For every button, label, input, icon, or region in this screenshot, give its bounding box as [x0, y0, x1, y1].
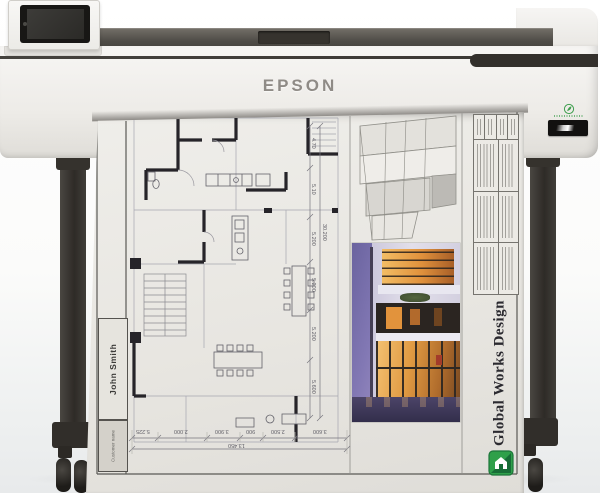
- stand-left-leg: [60, 158, 86, 446]
- green-house-logo-icon: [488, 450, 514, 476]
- photo-floor-slab: [376, 333, 460, 341]
- printed-sheet: 4.70 5.10 5.200 5.200 5.200 5.600 30.200…: [86, 112, 524, 493]
- customer-field-label-box: Customer name: [98, 420, 128, 472]
- model-nameplate-badge: [548, 120, 588, 136]
- revision-cell: [474, 115, 485, 139]
- revision-cell: [499, 243, 518, 294]
- door-swings: [178, 140, 224, 242]
- dimension-label: 5.200: [310, 278, 316, 292]
- stand-right-leg: [530, 155, 556, 445]
- house-night-photo: [352, 243, 460, 422]
- home-button-icon: [23, 22, 27, 26]
- dimension-label: 5.200: [310, 327, 316, 341]
- revision-table-header: [474, 115, 518, 140]
- dimension-label: 900: [246, 428, 255, 434]
- dimension-label: 3.900: [215, 428, 229, 434]
- revision-cell: [474, 192, 498, 244]
- dimension-chain-lines: [129, 123, 350, 454]
- dimension-label: 4.70: [310, 138, 316, 149]
- revision-column: [499, 140, 518, 294]
- dimension-label: 5.10: [310, 184, 316, 195]
- dimension-label: 2.500: [271, 428, 285, 434]
- photo-ground: [352, 397, 460, 422]
- revision-table-body: [474, 140, 518, 294]
- photo-lit-window: [386, 307, 402, 329]
- revision-cell: [499, 140, 518, 192]
- dimension-label: 2.000: [174, 428, 188, 434]
- photo-lit-window: [410, 309, 420, 325]
- photo-building-edge: [370, 247, 373, 403]
- left-caster-mount: [58, 446, 72, 458]
- right-caster-mount: [522, 444, 536, 456]
- eco-leaf-icon: [562, 103, 576, 115]
- revision-cell: [474, 140, 498, 192]
- revision-cell: [499, 192, 518, 244]
- dimension-total-label: 13.450: [228, 442, 245, 448]
- stand-left-foot: [52, 422, 92, 448]
- revision-column: [474, 140, 499, 294]
- plan-thin-lines: [134, 118, 338, 442]
- nameplate-logo-mark: [552, 125, 584, 131]
- dimension-total-label: 30.200: [321, 224, 327, 241]
- epson-logo: EPSON: [235, 76, 365, 96]
- studio-name-vertical: Global Works Design: [484, 300, 516, 446]
- revision-cell: [508, 115, 518, 139]
- photo-dark-band: [376, 303, 460, 333]
- control-panel: [8, 0, 100, 50]
- revision-cell: [497, 115, 508, 139]
- photo-lit-windows-upper: [382, 249, 454, 285]
- revision-table: [473, 114, 519, 295]
- photo-lit-window: [434, 308, 442, 326]
- 3d-model-render: [360, 116, 456, 240]
- dimension-label: 5.600: [310, 380, 316, 394]
- revision-cell: [485, 115, 496, 139]
- touchscreen-display: [27, 9, 84, 39]
- photo-lit-windows-lower: [376, 341, 460, 397]
- product-photo-epson-plotter: EPSON: [0, 0, 600, 493]
- customer-name-box: John Smith: [98, 318, 128, 420]
- printer-front-groove-wedge: [470, 54, 598, 67]
- left-caster-wheel: [56, 458, 71, 492]
- photo-planter: [400, 293, 430, 302]
- photo-red-accent: [436, 355, 442, 365]
- revision-cell: [474, 243, 498, 294]
- dimension-label: 5.225: [136, 428, 150, 434]
- right-caster-wheel: [528, 458, 543, 492]
- stairs: [144, 274, 186, 336]
- dimension-label: 3.600: [313, 428, 327, 434]
- photo-ground-reflection: [366, 397, 460, 407]
- eco-label-text: [554, 115, 584, 117]
- dimension-label: 5.200: [310, 232, 316, 246]
- touchscreen-bezel: [20, 5, 90, 43]
- printer-top-recess: [258, 31, 330, 44]
- photo-window-mullion: [376, 367, 460, 369]
